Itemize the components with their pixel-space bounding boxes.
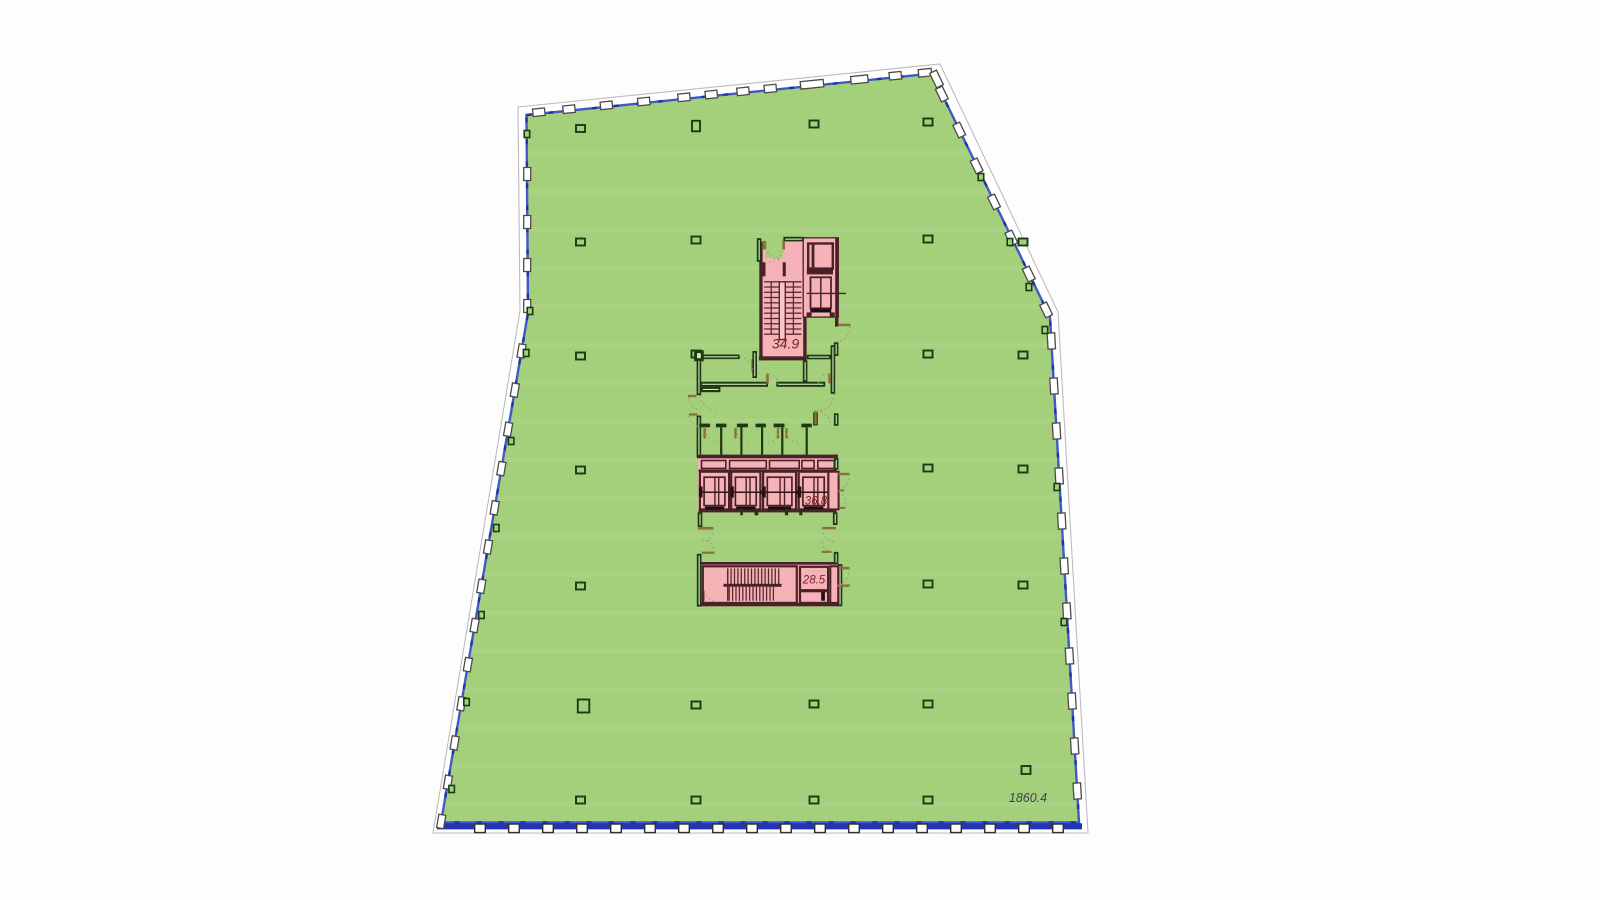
svg-text:1860.4: 1860.4: [1009, 791, 1047, 805]
svg-text:34.9: 34.9: [772, 336, 799, 352]
svg-text:28.5: 28.5: [802, 575, 826, 587]
svg-text:36.8: 36.8: [805, 496, 828, 508]
